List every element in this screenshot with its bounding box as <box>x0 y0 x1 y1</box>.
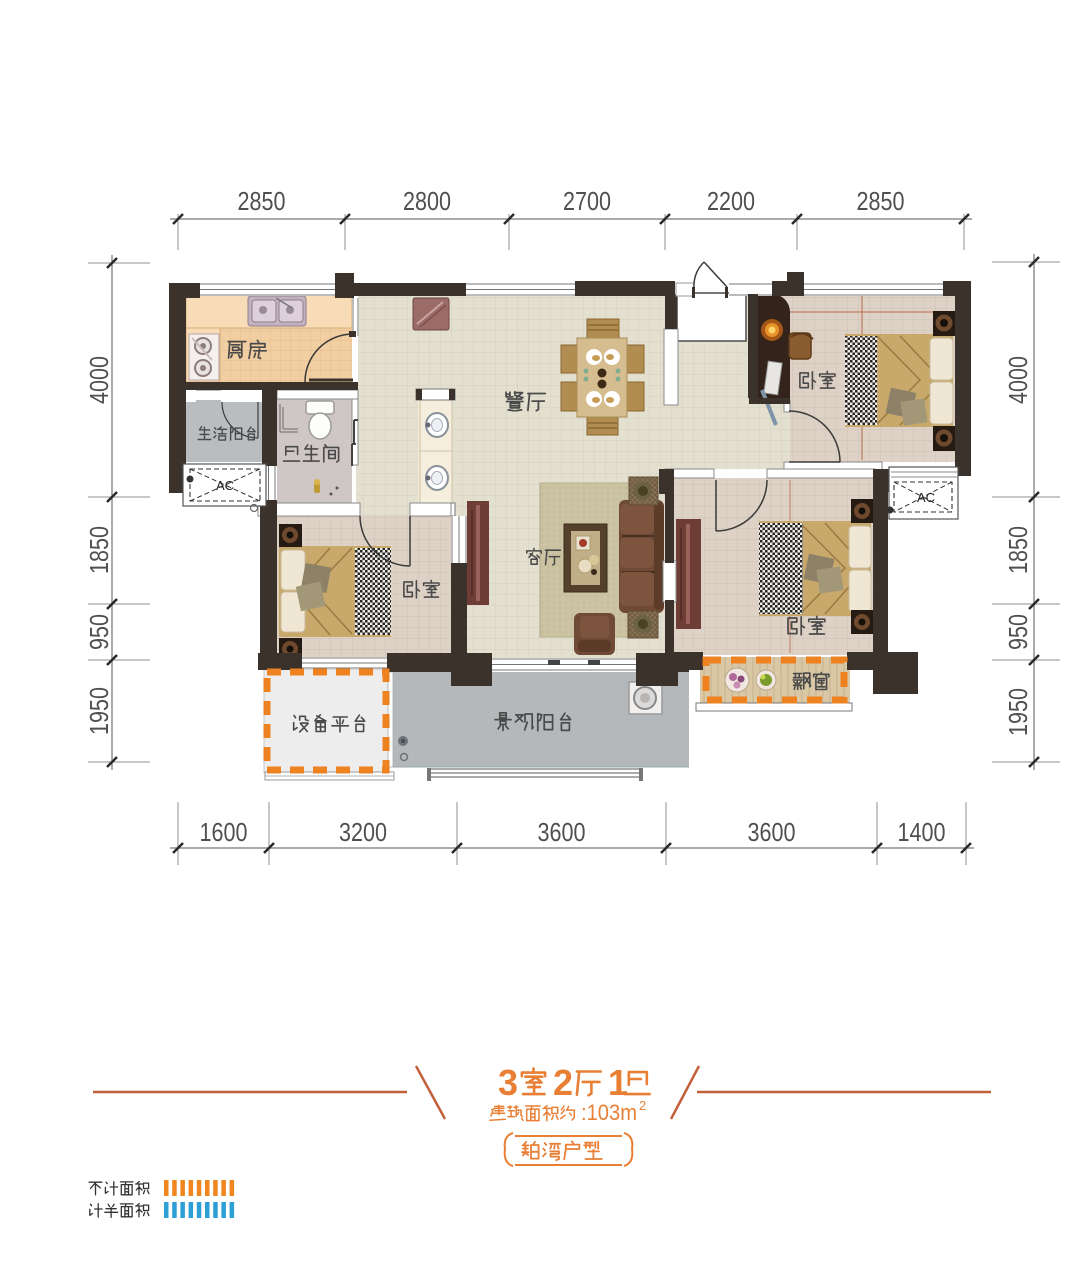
svg-text:1600: 1600 <box>200 817 248 847</box>
svg-text:1850: 1850 <box>1003 526 1033 574</box>
svg-text:2: 2 <box>639 1098 646 1113</box>
svg-text:AC: AC <box>216 478 234 493</box>
svg-text:3: 3 <box>498 1062 518 1103</box>
svg-text:3600: 3600 <box>538 817 586 847</box>
svg-text:3200: 3200 <box>339 817 387 847</box>
svg-text:950: 950 <box>84 614 114 650</box>
svg-text:1950: 1950 <box>1003 688 1033 736</box>
svg-text:2850: 2850 <box>238 186 286 216</box>
svg-text:2: 2 <box>553 1062 573 1103</box>
svg-text:4000: 4000 <box>84 356 114 404</box>
svg-text:4000: 4000 <box>1003 356 1033 404</box>
svg-text:1: 1 <box>608 1062 628 1103</box>
svg-text:2800: 2800 <box>403 186 451 216</box>
svg-text:3600: 3600 <box>748 817 796 847</box>
svg-text:AC: AC <box>917 490 935 505</box>
svg-text:2200: 2200 <box>707 186 755 216</box>
svg-text:1850: 1850 <box>84 526 114 574</box>
svg-text:2700: 2700 <box>563 186 611 216</box>
svg-text:2850: 2850 <box>857 186 905 216</box>
svg-text:950: 950 <box>1003 614 1033 650</box>
svg-text::103m: :103m <box>581 1100 637 1125</box>
svg-text:1950: 1950 <box>84 687 114 735</box>
svg-text:1400: 1400 <box>898 817 946 847</box>
